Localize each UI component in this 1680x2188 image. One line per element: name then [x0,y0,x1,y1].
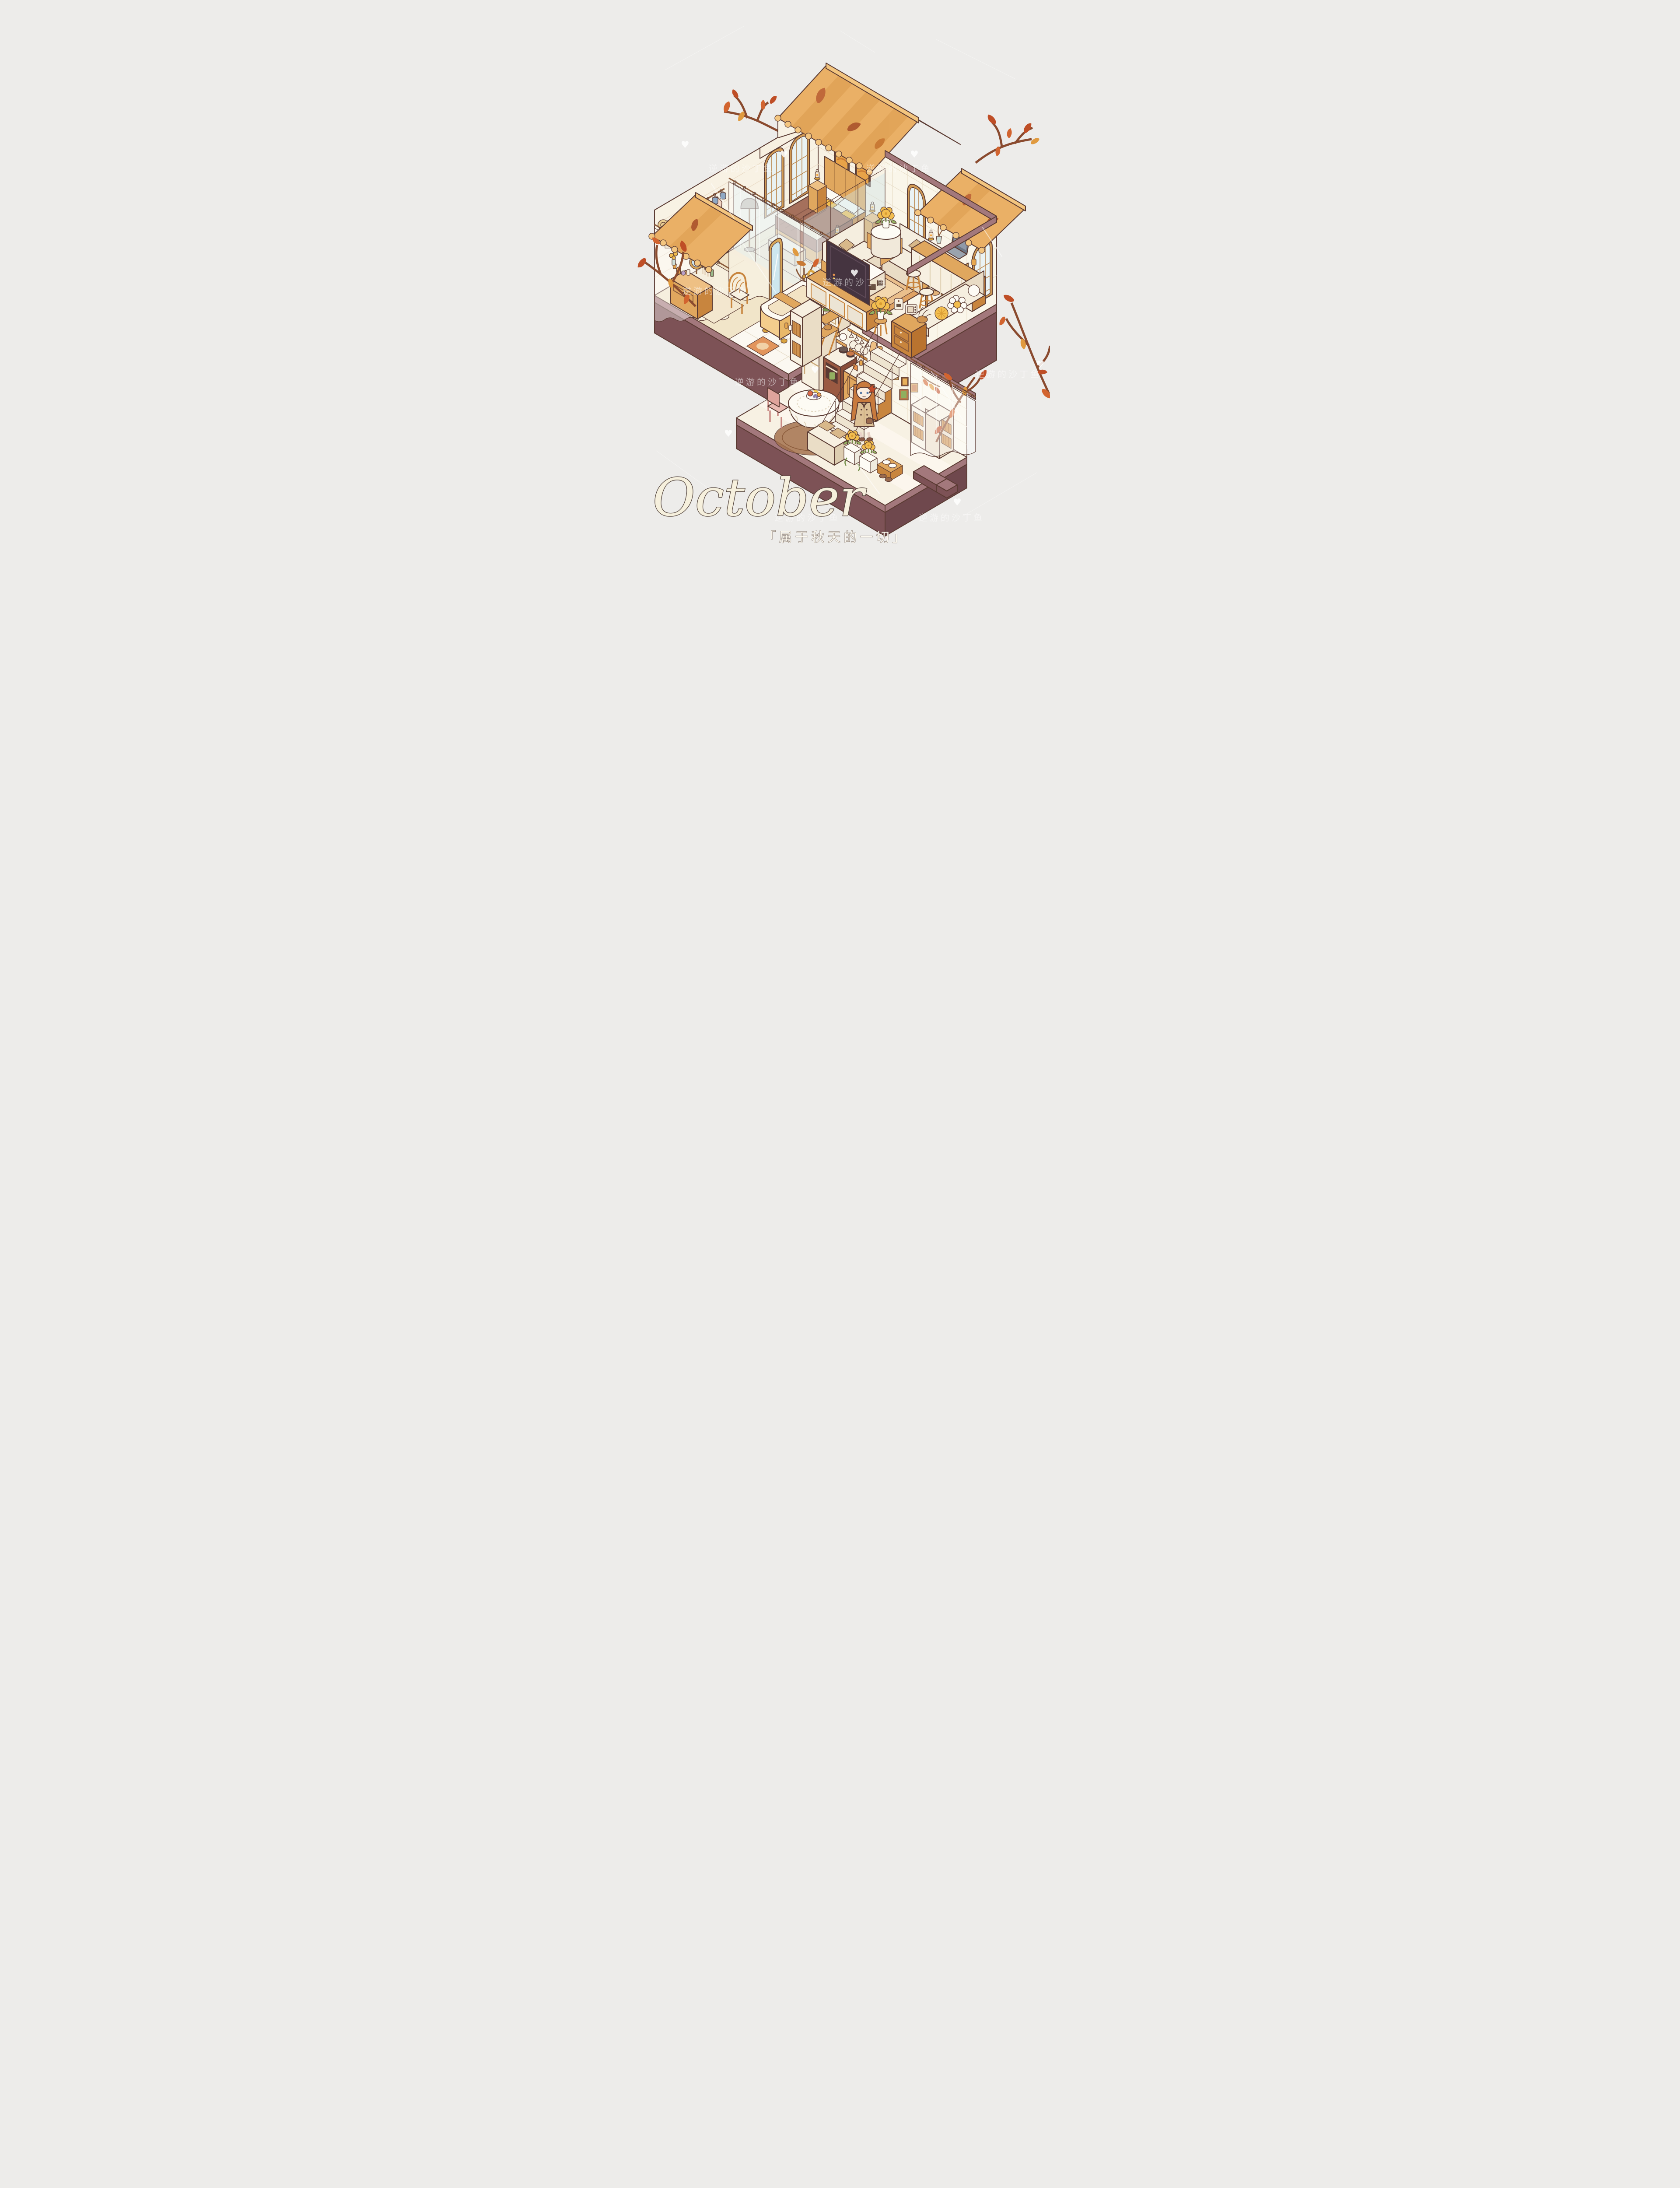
slipper [879,474,886,478]
heart-watermark-icon: ♥ [850,268,859,279]
coffee-machine [894,298,903,310]
round-pillow [968,285,980,296]
green-towel [829,372,835,380]
watermark-text: 逆游的沙丁鱼 [709,163,774,174]
shampoo-bottle [785,323,788,328]
artwork-canvas: 逆游的沙丁鱼 逆游的沙丁鱼 逆游的沙丁鱼 逆游的沙丁鱼 逆游的沙丁鱼 逆游的沙丁… [630,0,1050,560]
heart-watermark-icon: ♥ [910,149,919,160]
watermark-text: 逆游的沙丁鱼 [976,369,1041,379]
girl-bag [866,418,872,424]
watermark-text: 逆游的沙丁鱼 [866,163,932,174]
heart-watermark-icon: ♥ [953,497,962,508]
sneaker [882,460,890,464]
watermark-text: 逆游的沙丁鱼 [919,512,984,523]
subtitle-chinese: 「属于秋天的一切」 [763,530,909,545]
bathroom-tall-cabinet [791,299,822,367]
heart-watermark-icon: ♥ [780,149,788,160]
shampoo-bottle [789,325,792,330]
watermark-text: 逆游的沙丁鱼 [682,286,748,296]
heart-watermark-icon: ♥ [724,428,733,439]
heart-watermark-icon: ♥ [811,365,819,376]
heart-watermark-icon: ♥ [681,140,689,151]
bedroom-window-left-1 [790,133,809,203]
sneaker [889,463,896,468]
isometric-house-illustration: 逆游的沙丁鱼 逆游的沙丁鱼 逆游的沙丁鱼 逆游的沙丁鱼 逆游的沙丁鱼 逆游的沙丁… [630,0,1050,560]
mini-oven [906,305,917,314]
title-october: October [653,467,867,528]
watermark-text: 逆游的沙丁鱼 [735,377,801,387]
heart-watermark-icon: ♥ [1036,359,1045,370]
slipper [885,478,892,482]
